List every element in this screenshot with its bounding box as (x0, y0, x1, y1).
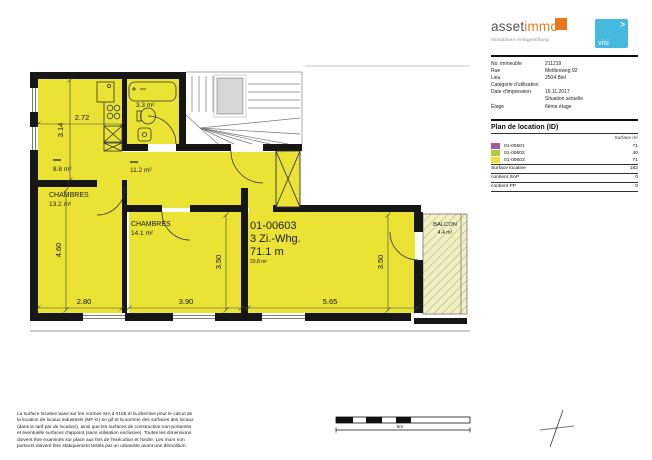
bedroom1-area-label: 13.2 m² (49, 201, 72, 208)
scale-bar: 5m (336, 417, 470, 433)
legend-row: 01-00602 40 (491, 150, 638, 157)
detail-label: Date d'impression (491, 89, 545, 96)
legend-rule (491, 133, 638, 134)
unit-id: 01-00602 (504, 151, 633, 156)
disclaimer-line: et éventuelle surfaces d'appoint (sans u… (17, 431, 195, 437)
pp-label: contient PP (491, 184, 635, 189)
window-left-2 (30, 127, 38, 150)
unit-living-area-label: 20.8 m² (250, 259, 267, 265)
stairwell (186, 72, 302, 144)
badge-arrow-icon: > (620, 20, 625, 29)
header-rule (491, 55, 638, 57)
color-swatch-yellow (491, 157, 500, 163)
logo-orange-square-icon (555, 18, 567, 30)
detail-label: No. immeuble (491, 61, 545, 68)
legend-sap-row: contient SAP 0 (491, 174, 638, 183)
color-swatch-green (491, 150, 500, 156)
blue-badge-icon: > visi (595, 19, 628, 48)
detail-row: Catégorie d'utilisation (491, 82, 638, 89)
window-bottom-3 (262, 313, 305, 321)
unit-surface: 71 (633, 144, 638, 149)
detail-row: Étage6ème étage (491, 104, 638, 111)
legend-rule-top (491, 119, 638, 121)
unit-id: 01-00601 (504, 144, 633, 149)
total-value: 182 (630, 166, 638, 171)
detail-row: Lieu2504 Biel (491, 75, 638, 82)
dim-living-height: 3.50 (376, 255, 385, 270)
window-bottom-1 (83, 313, 125, 321)
bedroom2-area-label: 14.1 m² (131, 230, 154, 237)
detail-label: Étage (491, 104, 545, 111)
unit-id: 01-00603 (504, 158, 633, 163)
unit-surface: 71 (633, 158, 638, 163)
detail-row: No. immeuble211219 (491, 61, 638, 68)
detail-label (491, 96, 545, 103)
window-left-1 (30, 88, 38, 112)
balcony-name-label: BALCON (433, 222, 457, 228)
sap-label: contient SAP (491, 175, 635, 180)
logo-part-asset: asset (491, 19, 524, 34)
elevator (217, 78, 243, 114)
bath-area-label: 3.3 m² (136, 102, 155, 109)
legend-total-row: Surface locative 182 (491, 164, 638, 174)
dim-bedroom2-height: 3.50 (214, 255, 223, 270)
sap-value: 0 (635, 175, 638, 180)
closet (276, 151, 300, 207)
logo-part-immo: immo (524, 19, 558, 34)
detail-value: 211219 (545, 61, 638, 68)
disclaimer-line: porteurs doivent être statiquement testé… (17, 444, 195, 450)
detail-row: RueMettlenweg 92 (491, 68, 638, 75)
detail-value: Situation actuelle (545, 96, 638, 103)
unit-id-label: 01-00603 (250, 220, 297, 232)
bedroom1-name-label: CHAMBRES (49, 192, 89, 199)
building-details: No. immeuble211219 RueMettlenweg 92 Lieu… (491, 61, 638, 111)
dim-kitchen-height: 3.14 (56, 123, 65, 138)
dim-kitchen-width: 2.72 (75, 113, 90, 122)
balcony (423, 214, 467, 314)
color-swatch-purple (491, 143, 500, 149)
detail-value: 2504 Biel (545, 75, 638, 82)
legend-title: Plan de location (ID) (491, 124, 638, 131)
detail-label: Rue (491, 68, 545, 75)
bedroom2-name-label: CHAMBRES (131, 221, 171, 228)
detail-value: 16.11.2017 (545, 89, 638, 96)
total-label: Surface locative (491, 166, 630, 171)
surface-legend: Plan de location (ID) Surface m² 01-0060… (491, 119, 638, 192)
legend-pp-row: contient PP 0 (491, 183, 638, 192)
legend-row: 01-00603 71 (491, 157, 638, 164)
page: 2.80 3.90 5.65 2.72 3.14 4.60 3.50 3.50 … (0, 0, 652, 460)
hall-area-label: 11.2 m² (130, 167, 152, 174)
surface-column-header: Surface m² (491, 136, 638, 141)
scale-label: 5m (397, 424, 404, 429)
disclaimer-text: La surface locative base sur les normes … (17, 412, 195, 450)
detail-row: Situation actuelle (491, 96, 638, 103)
badge-text: visi (598, 38, 609, 47)
dim-bedroom2-width: 3.90 (179, 297, 194, 306)
dim-living-width: 5.65 (323, 297, 338, 306)
disclaimer-line: la location de locaux industriels (MF-G)… (17, 418, 195, 424)
detail-label: Lieu (491, 75, 545, 82)
unit-type-label: 3 Zi.-Whg. (250, 233, 301, 245)
detail-value: 6ème étage (545, 104, 638, 111)
detail-value: Mettlenweg 92 (545, 68, 638, 75)
dim-bedroom1-width: 2.80 (77, 297, 92, 306)
window-bottom-2 (173, 313, 215, 321)
detail-row: Date d'impression16.11.2017 (491, 89, 638, 96)
detail-label: Catégorie d'utilisation (491, 82, 545, 89)
balcony-area-label: 4.4 m² (438, 230, 453, 236)
kitchen-area-label: 8.8 m² (53, 166, 72, 173)
unit-surface: 40 (633, 151, 638, 156)
pp-value: 0 (635, 184, 638, 189)
detail-value (545, 82, 638, 89)
dim-bedroom1-height: 4.60 (54, 243, 63, 258)
north-arrow-icon (540, 410, 574, 447)
legend-row: 01-00601 71 (491, 143, 638, 150)
unit-area-label: 71.1 m (250, 246, 284, 258)
